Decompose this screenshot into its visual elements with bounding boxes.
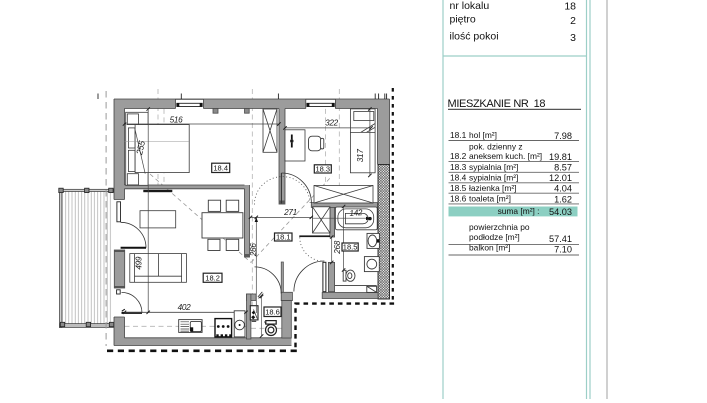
svg-text:271: 271 (283, 208, 297, 217)
svg-text:balkon [m²]: balkon [m²] (469, 242, 510, 252)
svg-text:18.6: 18.6 (265, 307, 280, 316)
svg-text:pok. dzienny z: pok. dzienny z (469, 141, 523, 151)
svg-text:322: 322 (325, 119, 339, 128)
svg-text:54.03: 54.03 (549, 207, 572, 217)
svg-text:sypialnia [m²]: sypialnia [m²] (469, 162, 518, 172)
svg-text:18.1: 18.1 (450, 130, 467, 140)
svg-text:7.10: 7.10 (554, 244, 572, 254)
svg-text:podłodze [m²]: podłodze [m²] (469, 232, 520, 242)
svg-text:18.3: 18.3 (450, 162, 467, 172)
svg-text:142: 142 (349, 208, 363, 218)
svg-text:18: 18 (564, 0, 576, 12)
svg-text:7.98: 7.98 (554, 131, 572, 141)
svg-text:516: 516 (170, 116, 184, 125)
svg-text:286: 286 (249, 243, 258, 258)
svg-text:piętro: piętro (450, 14, 476, 26)
svg-text:8.57: 8.57 (554, 163, 572, 173)
svg-text:1.62: 1.62 (554, 194, 572, 204)
svg-text:317: 317 (356, 149, 365, 163)
svg-text:nr lokalu: nr lokalu (450, 0, 490, 12)
svg-text:499: 499 (134, 256, 143, 270)
svg-text:4.04: 4.04 (554, 184, 572, 194)
svg-text:18.5: 18.5 (450, 183, 467, 193)
svg-text:18.4: 18.4 (450, 172, 467, 182)
svg-text:18.6: 18.6 (450, 193, 467, 203)
svg-text:57.41: 57.41 (549, 234, 572, 244)
svg-text:18.2: 18.2 (205, 273, 220, 282)
svg-text:łazienka [m²]: łazienka [m²] (469, 183, 516, 193)
svg-text:18.2: 18.2 (450, 151, 467, 161)
svg-text:268: 268 (333, 240, 342, 255)
svg-text:toaleta [m²]: toaleta [m²] (469, 193, 511, 203)
svg-text:ilość pokoi: ilość pokoi (450, 31, 499, 43)
svg-text:3: 3 (570, 32, 576, 44)
svg-text:18.5: 18.5 (343, 243, 358, 252)
svg-text:2: 2 (570, 15, 576, 27)
svg-text:powierzchnia po: powierzchnia po (469, 222, 530, 232)
svg-text:18.4: 18.4 (213, 163, 228, 172)
svg-text:12.01: 12.01 (549, 173, 572, 183)
svg-text:MIESZKANIE NR 18: MIESZKANIE NR 18 (448, 98, 546, 110)
svg-text:18.3: 18.3 (315, 165, 330, 174)
svg-text:aneksem kuch. [m²]: aneksem kuch. [m²] (469, 151, 542, 161)
svg-text:402: 402 (178, 303, 192, 312)
svg-text:hol [m²]: hol [m²] (469, 130, 497, 140)
svg-text:sypialnia [m²]: sypialnia [m²] (469, 172, 518, 182)
svg-text:19.81: 19.81 (549, 152, 572, 162)
svg-text:18.1: 18.1 (276, 233, 291, 242)
svg-text:suma [m²] :: suma [m²] : (498, 206, 540, 216)
